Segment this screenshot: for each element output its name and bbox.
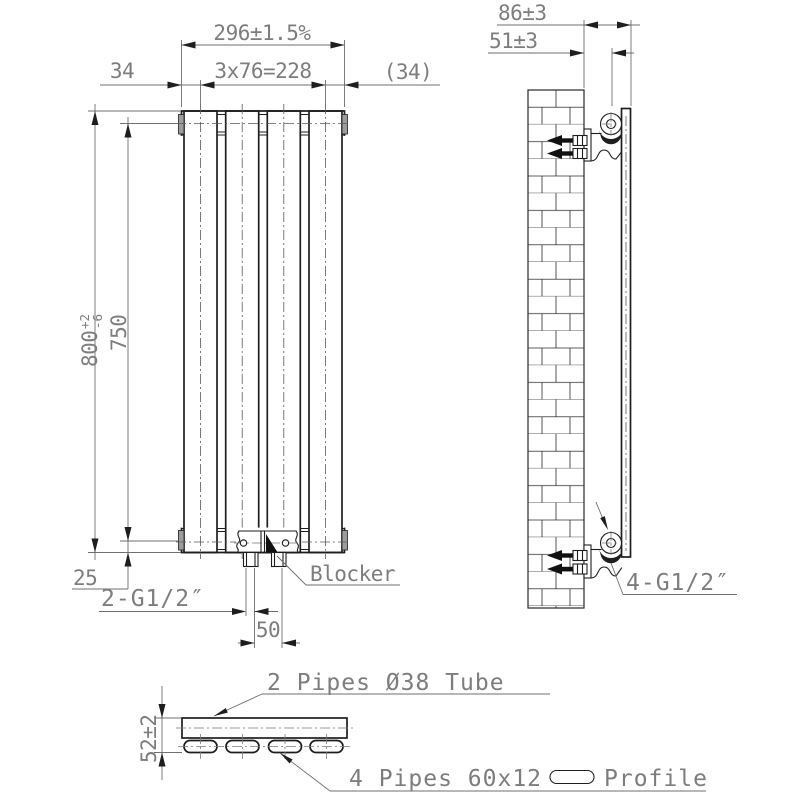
label-top-pipes: 2 Pipes Ø38 Tube (267, 670, 505, 696)
front-view: 296±1.5% 34 3x76=228 (34) 800 +2 -6 (72, 21, 440, 648)
dim-width-label: 296±1.5% (213, 21, 311, 45)
dim-depth-label: 86±3 (498, 1, 547, 25)
profile-symbol (550, 771, 594, 784)
dim-spacing-label: 3x76=228 (214, 59, 311, 83)
front-height-dims: 800 +2 -6 750 25 (72, 104, 181, 590)
end-cap (342, 531, 348, 551)
svg-text:52±2: 52±2 (137, 714, 161, 763)
end-cap (342, 115, 348, 135)
end-cap (179, 115, 185, 135)
end-cap (179, 531, 185, 551)
front-width-dims: 296±1.5% 34 3x76=228 (34) (100, 21, 440, 108)
dim-edge-left-label: 34 (110, 59, 134, 83)
svg-text:800: 800 (78, 331, 102, 367)
svg-text:750: 750 (107, 315, 131, 351)
pipe-nipple (272, 553, 287, 567)
label-connection-4g: 4-G1/2″ (626, 570, 730, 596)
wall (528, 90, 584, 608)
dim-edge-right-label: (34) (384, 60, 433, 84)
radiator-technical-drawing: 296±1.5% 34 3x76=228 (34) 800 +2 -6 (0, 0, 800, 800)
dim-height-label: 800 +2 -6 (77, 314, 105, 367)
pipe-nipple (244, 553, 259, 567)
front-connection-dims: 2-G1/2″ 50 Blocker (99, 556, 400, 648)
dim-pipe-distance-label: 50 (256, 618, 280, 642)
pipe-hole (282, 540, 288, 546)
label-blocker: Blocker (310, 562, 395, 586)
svg-text:-6: -6 (90, 314, 105, 329)
label-profile: Profile (604, 766, 708, 792)
side-dims: 86±3 51±3 4-G1/2″ (488, 1, 737, 596)
section-view: 52±2 2 Pipes Ø38 Tube 4 Pipes 60x12 Prof… (137, 670, 708, 792)
bottom-cutaway (234, 528, 301, 567)
side-view: 86±3 51±3 4-G1/2″ (488, 1, 737, 608)
label-bottom-pipes: 4 Pipes 60x12 (349, 766, 542, 792)
pipe-hole (240, 540, 246, 546)
label-connection-2g: 2-G1/2″ (101, 586, 205, 612)
dim-thickness-label: 52±2 (137, 714, 161, 763)
radiator-panels (184, 111, 342, 553)
dim-bottom-offset-label: 25 (73, 566, 97, 590)
side-panel (622, 109, 631, 558)
dim-pipe-center-label: 51±3 (489, 29, 538, 53)
dim-pipe-span-label: 750 (107, 315, 131, 351)
